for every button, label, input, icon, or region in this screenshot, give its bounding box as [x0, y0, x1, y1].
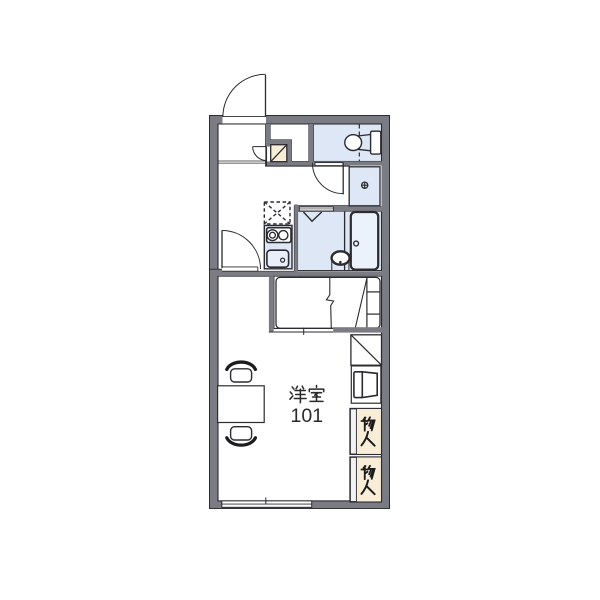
svg-text:101: 101 [291, 405, 324, 427]
